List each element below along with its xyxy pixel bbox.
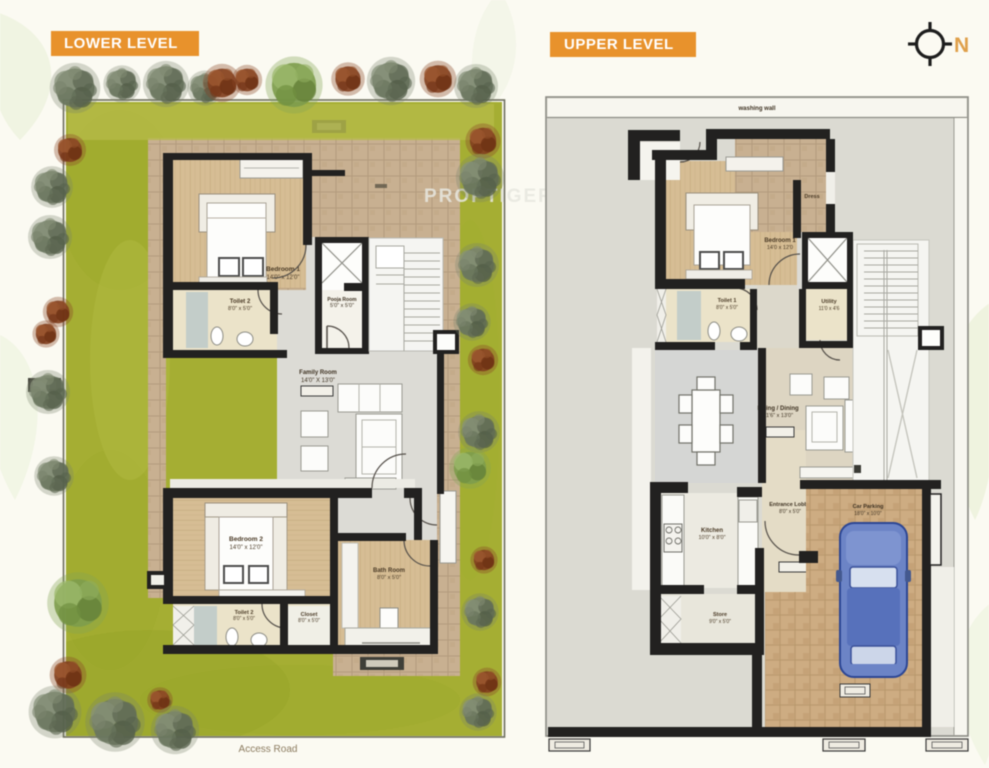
svg-text:8'0" x 5'0": 8'0" x 5'0" <box>228 306 252 312</box>
svg-text:8'0" x 5'0": 8'0" x 5'0" <box>298 618 320 624</box>
svg-text:9'0" x 5'0": 9'0" x 5'0" <box>709 619 731 625</box>
svg-text:21'6" x 13'0": 21'6" x 13'0" <box>763 413 793 419</box>
svg-text:Dress: Dress <box>804 194 819 200</box>
svg-text:Store: Store <box>713 612 727 618</box>
svg-text:5'0" x 5'0": 5'0" x 5'0" <box>330 303 354 309</box>
svg-text:Bedroom 1: Bedroom 1 <box>764 238 796 244</box>
svg-text:10'0" x 8'0": 10'0" x 8'0" <box>698 535 725 541</box>
svg-text:14'0" x 12'0": 14'0" x 12'0" <box>267 275 300 281</box>
svg-text:14'0 x 12'0: 14'0 x 12'0 <box>767 245 793 251</box>
svg-text:Toilet 2: Toilet 2 <box>230 299 251 305</box>
svg-text:Utility: Utility <box>821 299 837 305</box>
svg-text:14'0" x 12'0": 14'0" x 12'0" <box>230 545 263 551</box>
svg-text:UPPER LEVEL: UPPER LEVEL <box>564 36 674 53</box>
svg-text:18'0" x 10'0": 18'0" x 10'0" <box>854 511 882 517</box>
svg-text:Bedroom 2: Bedroom 2 <box>229 536 263 543</box>
svg-text:LOWER LEVEL: LOWER LEVEL <box>64 35 178 52</box>
svg-text:washing wall: washing wall <box>737 106 775 112</box>
svg-text:8'0" x 5'0": 8'0" x 5'0" <box>377 575 401 581</box>
svg-text:Car Parking: Car Parking <box>853 504 884 510</box>
svg-text:Bath Room: Bath Room <box>373 568 405 574</box>
svg-text:11'0 x 4'6: 11'0 x 4'6 <box>819 306 840 312</box>
svg-text:8'0" x 5'0": 8'0" x 5'0" <box>233 616 255 622</box>
svg-text:Entrance Lobby: Entrance Lobby <box>769 502 812 508</box>
svg-text:N: N <box>954 34 969 57</box>
svg-text:14'0" X 13'0": 14'0" X 13'0" <box>301 378 335 384</box>
svg-text:Family Room: Family Room <box>299 370 337 376</box>
svg-text:8'0" x 5'0": 8'0" x 5'0" <box>716 305 738 311</box>
svg-text:Kitchen: Kitchen <box>701 528 723 534</box>
svg-text:Access Road: Access Road <box>239 744 298 755</box>
svg-text:Toilet 1: Toilet 1 <box>718 298 737 304</box>
svg-text:8'0" x 5'0": 8'0" x 5'0" <box>779 509 801 515</box>
